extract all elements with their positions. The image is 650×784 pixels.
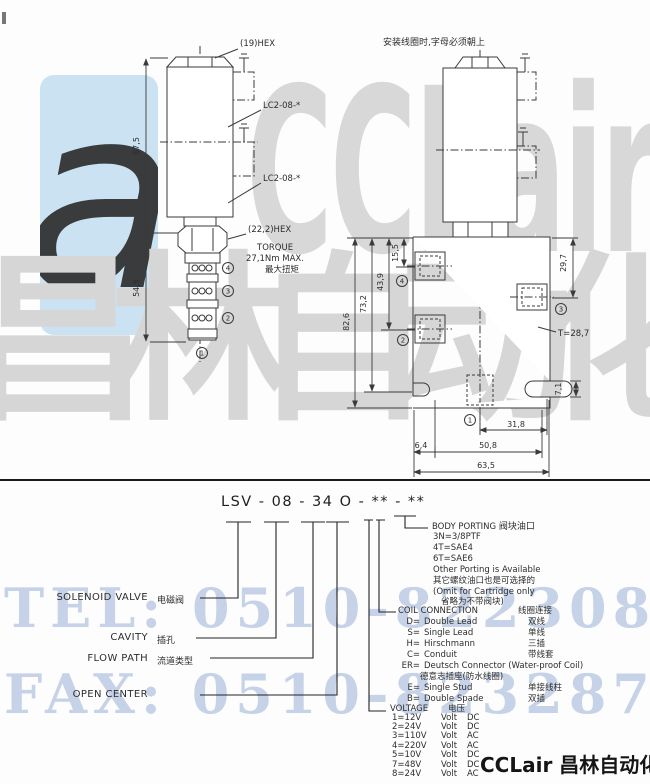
port-2-callout: 2 <box>401 337 405 345</box>
port-4-callout: 4 <box>400 278 405 286</box>
body-porting-line: 4T=SAE4 <box>433 544 473 554</box>
ground-symbol-icon <box>520 54 530 72</box>
dim-43-9: 43,9 <box>376 273 385 291</box>
torque-label-3: 最大扭矩 <box>265 264 300 275</box>
ground-symbol-icon <box>239 124 249 142</box>
dim-82-6: 82,6 <box>342 313 351 331</box>
torque-label-2: 27,1Nm MAX. <box>246 254 304 264</box>
hex-top-label: (19)HEX <box>240 39 275 49</box>
dim-cartridge-height: 54,5 <box>132 279 141 297</box>
coil-row-code: C= <box>378 651 420 661</box>
port-4-callout: 4 <box>226 265 231 273</box>
coil-row-en: Single Stud <box>424 684 472 694</box>
coil-row-code: D= <box>378 618 420 628</box>
coil-row-cn: 单接线柱 <box>528 684 562 694</box>
dim-31-8: 31,8 <box>507 420 525 429</box>
coil-row-code: E= <box>378 684 420 694</box>
voltage-code: 8=24V <box>392 770 421 780</box>
cavity-label-1: LC2-08-* <box>263 101 300 111</box>
coil-row-en: Conduit <box>424 651 457 661</box>
coil-row-en: 德意志插座(防水线圈) <box>420 673 503 683</box>
dim-coil-height: 87,5 <box>132 137 141 155</box>
label-flow-path: FLOW PATH <box>18 653 148 664</box>
dim-7-1: 7,1 <box>554 383 563 396</box>
hex-bottom-label: (22,2)HEX <box>248 225 291 235</box>
body-porting-line: Other Porting is Available <box>433 566 541 576</box>
ground-symbol-icon <box>239 54 249 72</box>
coil-connection-title: COIL CONNECTION <box>398 607 478 617</box>
left-view-drawing: (19)HEX LC2-08-* LC2-08-* 87,5 <box>132 39 304 362</box>
voltage-unit: Volt <box>441 770 457 780</box>
label-cavity-cn: 插孔 <box>157 633 175 646</box>
coil-install-note: 安装线圈时,字母必须朝上 <box>383 36 485 48</box>
ground-symbol-icon <box>518 128 528 146</box>
dim-63-5: 63,5 <box>477 461 495 470</box>
body-porting-line: 3N=3/8PTF <box>433 533 481 543</box>
coil-row-code: H= <box>378 640 420 650</box>
port-1-callout: 1 <box>468 417 472 425</box>
thread-label: T=28,7 <box>557 329 589 339</box>
port-2-callout: 2 <box>226 315 230 323</box>
coil-row-cn: 双插 <box>528 695 545 705</box>
right-view-drawing: 安装线圈时,字母必须朝上 <box>342 36 589 477</box>
body-porting-title-en: BODY PORTING <box>432 522 496 532</box>
label-flow-path-cn: 流道类型 <box>157 654 193 667</box>
dim-50-8: 50,8 <box>479 441 497 450</box>
technical-drawings: (19)HEX LC2-08-* LC2-08-* 87,5 <box>0 0 650 480</box>
footer-brand-text: CCLair 昌林自动化 <box>480 749 650 778</box>
coil-connection-title-cn: 线圈连接 <box>518 607 552 617</box>
coil-row-en: Single Lead <box>424 629 473 639</box>
port-3-callout: 3 <box>559 306 563 314</box>
body-porting-line: 其它螺纹油口也是可选择的 <box>433 577 535 587</box>
dim-15-5: 15,5 <box>391 244 400 262</box>
coil-row-en: Double Lead <box>424 618 477 628</box>
label-cavity: CAVITY <box>18 632 148 643</box>
label-solenoid-valve-cn: 电磁阀 <box>157 593 184 606</box>
body-porting-title-cn: 阀块油口 <box>499 522 535 532</box>
dim-29-7: 29,7 <box>559 254 568 272</box>
coil-row-cn: 三插 <box>528 640 545 650</box>
port-1-callout: 1 <box>200 350 204 358</box>
coil-row-code: ER= <box>378 662 420 672</box>
label-open-center: OPEN CENTER <box>18 689 148 700</box>
coil-row-en: Deutsch Connector (Water-proof Coil) <box>424 662 583 672</box>
torque-label-1: TORQUE <box>256 243 293 253</box>
datasheet-page: a CCLair 昌林自动化 TEL: 0510-82230871 FAX: 0… <box>0 0 650 784</box>
body-porting-line: 6T=SAE6 <box>433 555 473 565</box>
coil-row-cn: 单线 <box>528 629 545 639</box>
coil-row-cn: 带线套 <box>528 651 554 661</box>
dim-6-4: 6,4 <box>415 441 428 450</box>
voltage-type: AC <box>467 770 479 780</box>
cavity-label-2: LC2-08-* <box>263 174 300 184</box>
coil-connection-title-en: COIL CONNECTION <box>398 606 478 616</box>
dim-73-2: 73,2 <box>359 295 368 313</box>
port-3-callout: 3 <box>226 288 230 296</box>
coil-row-code: S= <box>378 629 420 639</box>
label-solenoid-valve: SOLENOID VALVE <box>18 592 148 603</box>
coil-row-en: Hirschmann <box>424 640 475 650</box>
coil-row-cn: 双线 <box>528 618 545 628</box>
